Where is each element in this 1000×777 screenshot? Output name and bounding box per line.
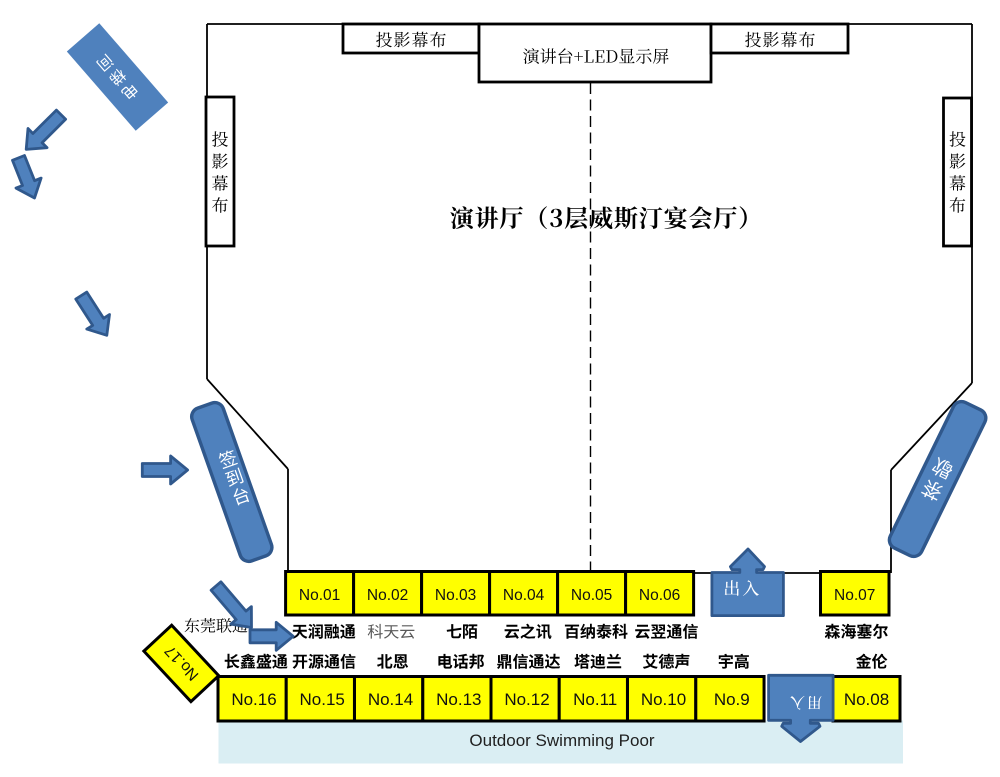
svg-text:No.02: No.02	[367, 587, 408, 604]
svg-text:No.12: No.12	[504, 690, 549, 709]
svg-text:No.10: No.10	[641, 690, 686, 709]
svg-text:No.11: No.11	[573, 690, 617, 709]
svg-text:No.07: No.07	[834, 587, 875, 604]
svg-text:Outdoor Swimming Poor: Outdoor Swimming Poor	[469, 731, 655, 750]
svg-text:No.04: No.04	[503, 587, 545, 604]
svg-text:No.9: No.9	[714, 690, 750, 709]
svg-text:No.01: No.01	[299, 587, 340, 604]
svg-text:No.03: No.03	[435, 587, 476, 604]
svg-text:No.05: No.05	[571, 587, 612, 604]
svg-text:No.16: No.16	[231, 690, 276, 709]
svg-text:No.06: No.06	[639, 587, 680, 604]
svg-text:No.13: No.13	[436, 690, 481, 709]
svg-text:No.08: No.08	[844, 690, 889, 709]
svg-text:No.15: No.15	[300, 690, 345, 709]
svg-text:No.14: No.14	[368, 690, 413, 709]
